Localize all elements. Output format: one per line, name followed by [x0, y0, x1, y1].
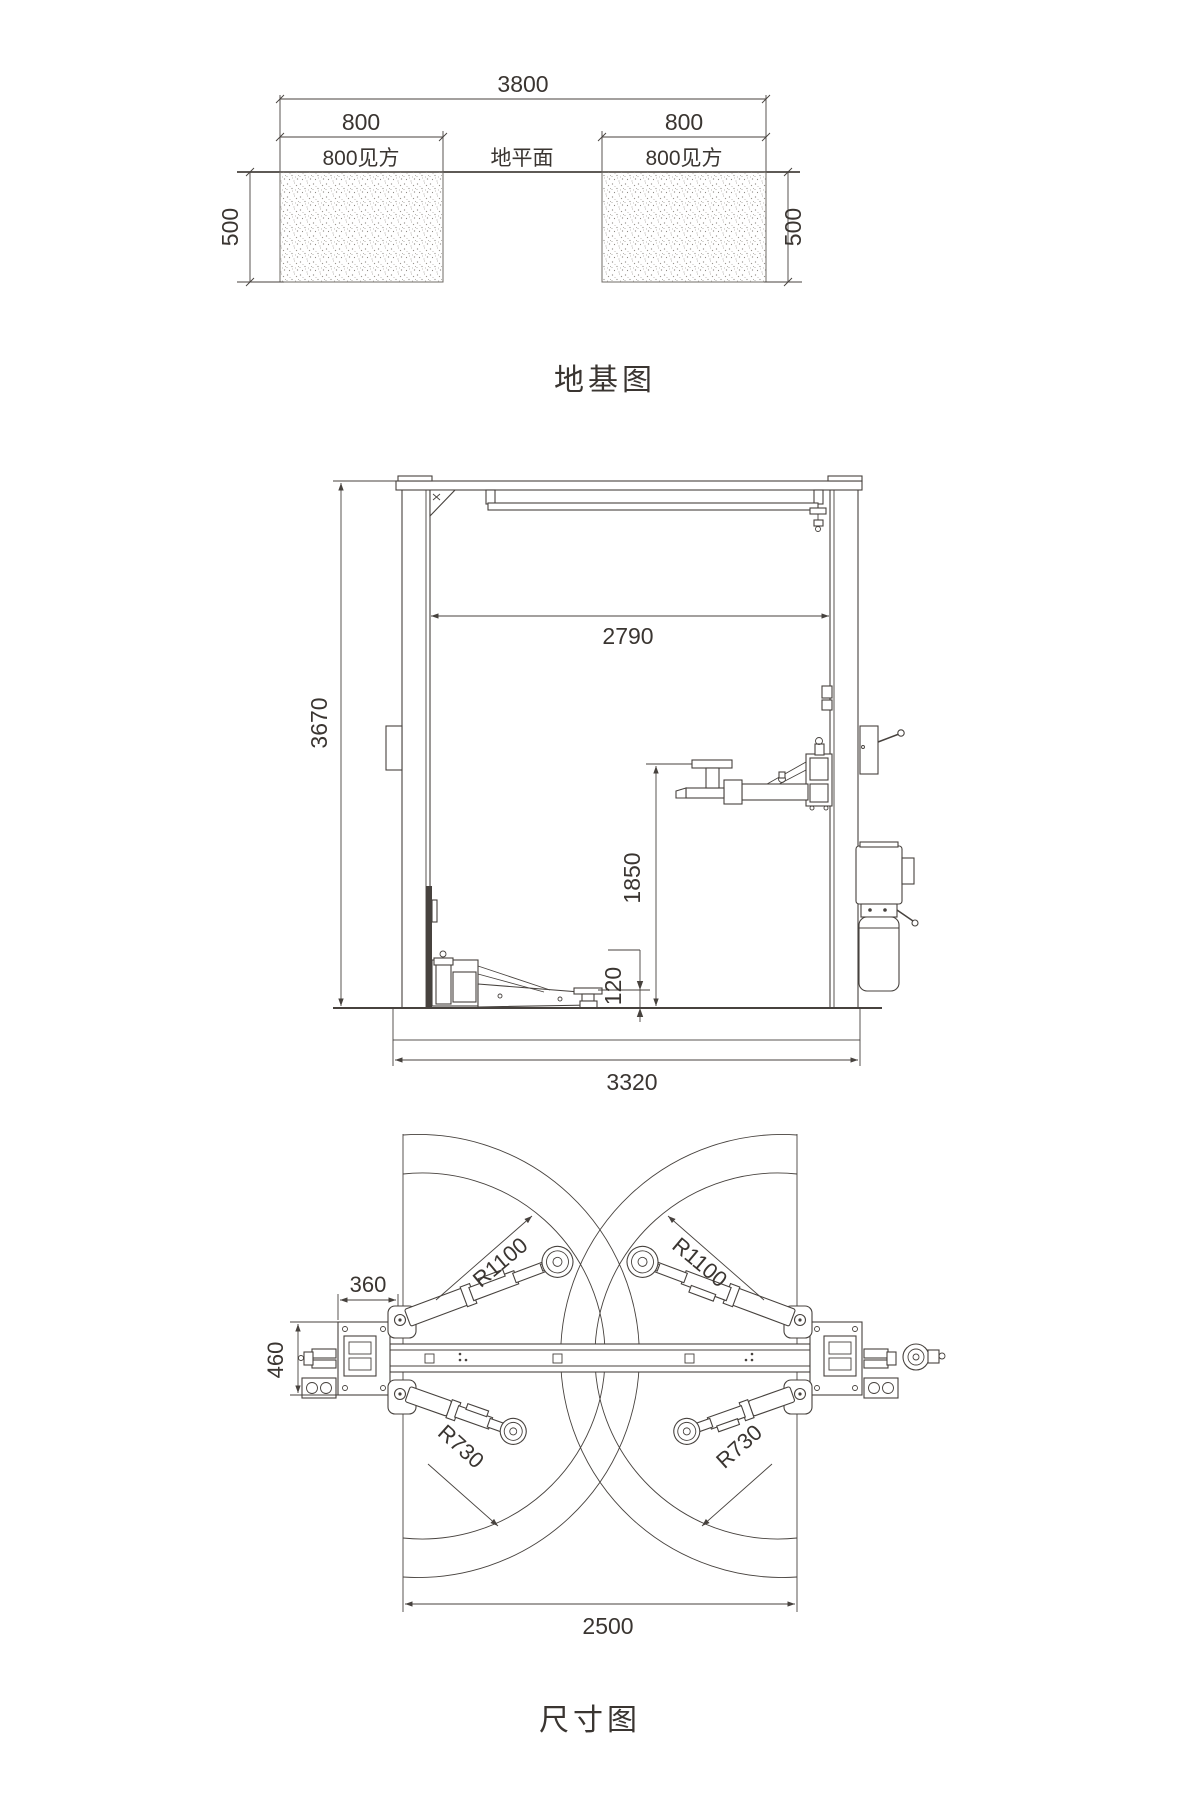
plan-view-title: 尺寸图 [539, 1704, 641, 1737]
right-long-arm-pad [623, 1242, 663, 1282]
left-lock-strip [426, 886, 432, 1008]
lift-installation-drawing-page: 3800 800 800 800见方 地平面 800见方 500 500 地基图 [0, 0, 1200, 1800]
foundation-view-title: 地基图 [554, 364, 656, 397]
technical-drawing-canvas: 3800 800 800 800见方 地平面 800见方 500 500 地基图 [0, 0, 1200, 1800]
front-view: 2790 3670 1850 120 3320 [306, 476, 918, 1095]
left-post-side-plate [386, 726, 402, 770]
dim-460-label: 460 [263, 1342, 288, 1379]
block-square-left-label: 800见方 [322, 147, 399, 170]
dim-1850-label: 1850 [619, 852, 645, 903]
foundation-block-left [280, 172, 443, 282]
raised-arm-tip [676, 788, 686, 798]
raised-pad-cap [692, 760, 732, 768]
right-post-latch-lower [822, 700, 832, 710]
overhead-beam [396, 481, 862, 490]
block-square-right-label: 800见方 [645, 147, 722, 170]
dim-3800-label: 3800 [497, 71, 548, 97]
r730-left-leader [428, 1464, 498, 1526]
ground-level-label: 地平面 [491, 147, 554, 170]
raised-arm-extension [686, 788, 724, 798]
release-handle-knob [912, 920, 918, 926]
hydraulic-hose-reel [903, 1344, 945, 1370]
safety-bar-nut [814, 520, 823, 526]
left-short-arm-pad [497, 1415, 530, 1448]
raised-arm-joint [724, 780, 742, 804]
lowered-pad-cap [574, 988, 602, 994]
right-post-latch-upper [822, 686, 832, 698]
swing-boundary-lines [403, 1134, 797, 1612]
right-post-cap [828, 476, 862, 481]
control-box [860, 726, 904, 774]
right-short-arm-pad [670, 1415, 703, 1448]
power-unit [856, 842, 918, 991]
safety-bar-right-bracket [814, 490, 823, 504]
left-long-arm-pad [538, 1242, 578, 1282]
raised-arm-boom [742, 784, 808, 800]
dim-3320-label: 3320 [606, 1069, 657, 1095]
right-anchor-bracket [864, 1378, 898, 1398]
floor-track-beam [390, 1344, 810, 1372]
lowered-arm-assembly [432, 951, 602, 1008]
dim-3670-label: 3670 [306, 697, 332, 748]
dim-800-left-label: 800 [342, 109, 380, 135]
dim-500-right-label: 500 [780, 208, 806, 246]
lowered-pad-stem [582, 994, 594, 1001]
foundation-view: 3800 800 800 800见方 地平面 800见方 500 500 地基图 [217, 71, 806, 397]
dim-800-right-label: 800 [665, 109, 703, 135]
overhead-safety-bar [488, 503, 818, 510]
motor-junction-box [902, 858, 914, 884]
left-lock-teeth [432, 900, 437, 922]
dim-120-label: 120 [600, 967, 626, 1005]
left-post-cap [398, 476, 432, 481]
dim-2790-label: 2790 [602, 623, 653, 649]
safety-bar-clamp [810, 508, 826, 514]
dim-2500-label: 2500 [582, 1613, 633, 1639]
foundation-block-right [602, 172, 766, 282]
r730-right-leader [702, 1464, 772, 1526]
beam-gusset [430, 490, 455, 516]
control-lever-knob [898, 730, 904, 736]
motor [856, 846, 902, 904]
release-handle [897, 910, 913, 921]
base-slab [393, 1008, 860, 1040]
dim-360-label: 360 [350, 1272, 387, 1297]
dim-500-left-label: 500 [217, 208, 243, 246]
dim-3320-ext [393, 1040, 860, 1066]
plan-view: R1100 R1100 R730 R730 360 460 2500 尺寸图 [263, 1134, 945, 1737]
raised-arm-assembly [676, 738, 832, 811]
dim-500-left-lines [237, 172, 284, 282]
safety-bar-bolt [816, 527, 821, 532]
r730-left-label: R730 [433, 1420, 489, 1474]
pump-flange [861, 904, 897, 917]
raised-pad-stem [706, 768, 719, 788]
safety-bar-left-bracket [486, 490, 495, 504]
control-lever [878, 734, 899, 742]
